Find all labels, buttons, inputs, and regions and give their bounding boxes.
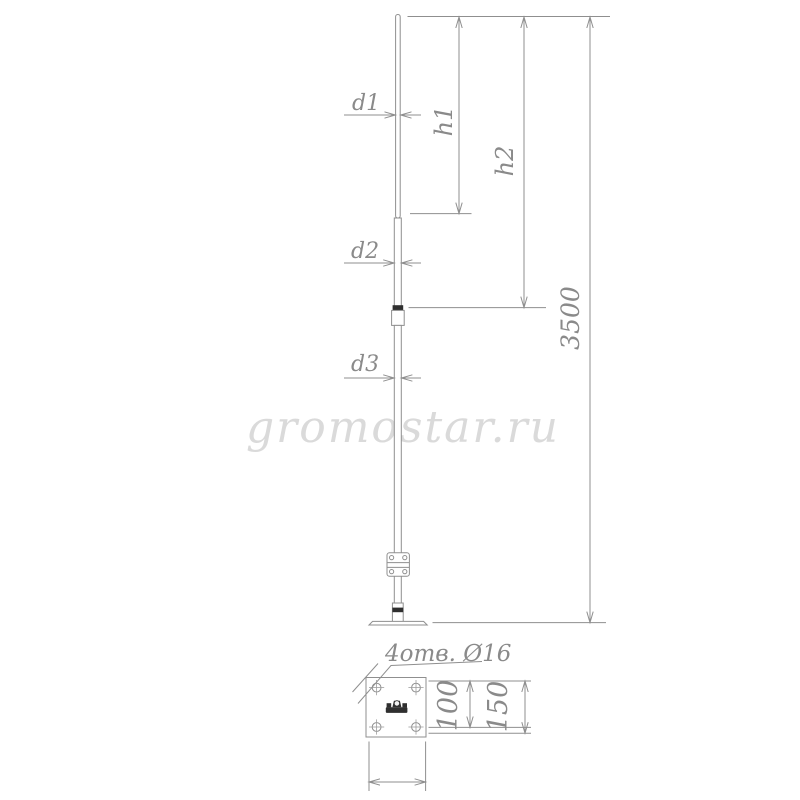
label-total-height: 3500 <box>556 286 585 350</box>
clamp-bolt <box>390 556 394 560</box>
label-d2: d2 <box>351 239 379 264</box>
mast-segment-1 <box>396 15 401 219</box>
label-d1: d1 <box>352 91 380 116</box>
clamp-base-bar <box>386 707 408 713</box>
clamp-bolt <box>403 556 407 560</box>
dim-hole-spacing: 100 <box>429 680 532 732</box>
label-h1: h1 <box>430 106 458 137</box>
label-d3: d3 <box>351 352 379 377</box>
base-flange-side <box>369 621 427 625</box>
clamp-center-hole <box>394 701 399 706</box>
clamp-bolt <box>390 570 394 574</box>
wall-clamp <box>387 553 409 576</box>
label-hole-spacing: 100 <box>433 680 464 732</box>
engineering-drawing: gromostar.ru h1 h2 <box>0 0 800 800</box>
coupling-sleeve <box>392 310 405 325</box>
label-holes-note: 4отв. Ø16 <box>384 641 511 667</box>
clamp-bolt <box>403 570 407 574</box>
label-plate-size: 150 <box>483 681 514 733</box>
clamp-end-block <box>402 703 407 707</box>
drawing-canvas: gromostar.ru h1 h2 <box>0 0 800 800</box>
bottom-socket <box>392 603 403 623</box>
front-dimensions: h1 h2 3500 d1 d2 d3 <box>344 17 610 623</box>
base-plate-plan-view: 4отв. Ø16 100 150 <box>353 641 532 791</box>
dim-plate-width-bottom <box>369 742 426 792</box>
dim-d2: d2 <box>344 239 421 264</box>
mast-segment-2 <box>394 218 401 308</box>
coupling-band <box>393 305 404 310</box>
dim-d1: d1 <box>344 91 421 116</box>
label-h2: h2 <box>491 146 519 177</box>
watermark: gromostar.ru <box>246 402 560 453</box>
clamp-end-block <box>387 703 392 707</box>
dim-d3: d3 <box>344 352 421 378</box>
dim-h2: h2 <box>409 17 547 308</box>
socket-band <box>392 608 403 613</box>
